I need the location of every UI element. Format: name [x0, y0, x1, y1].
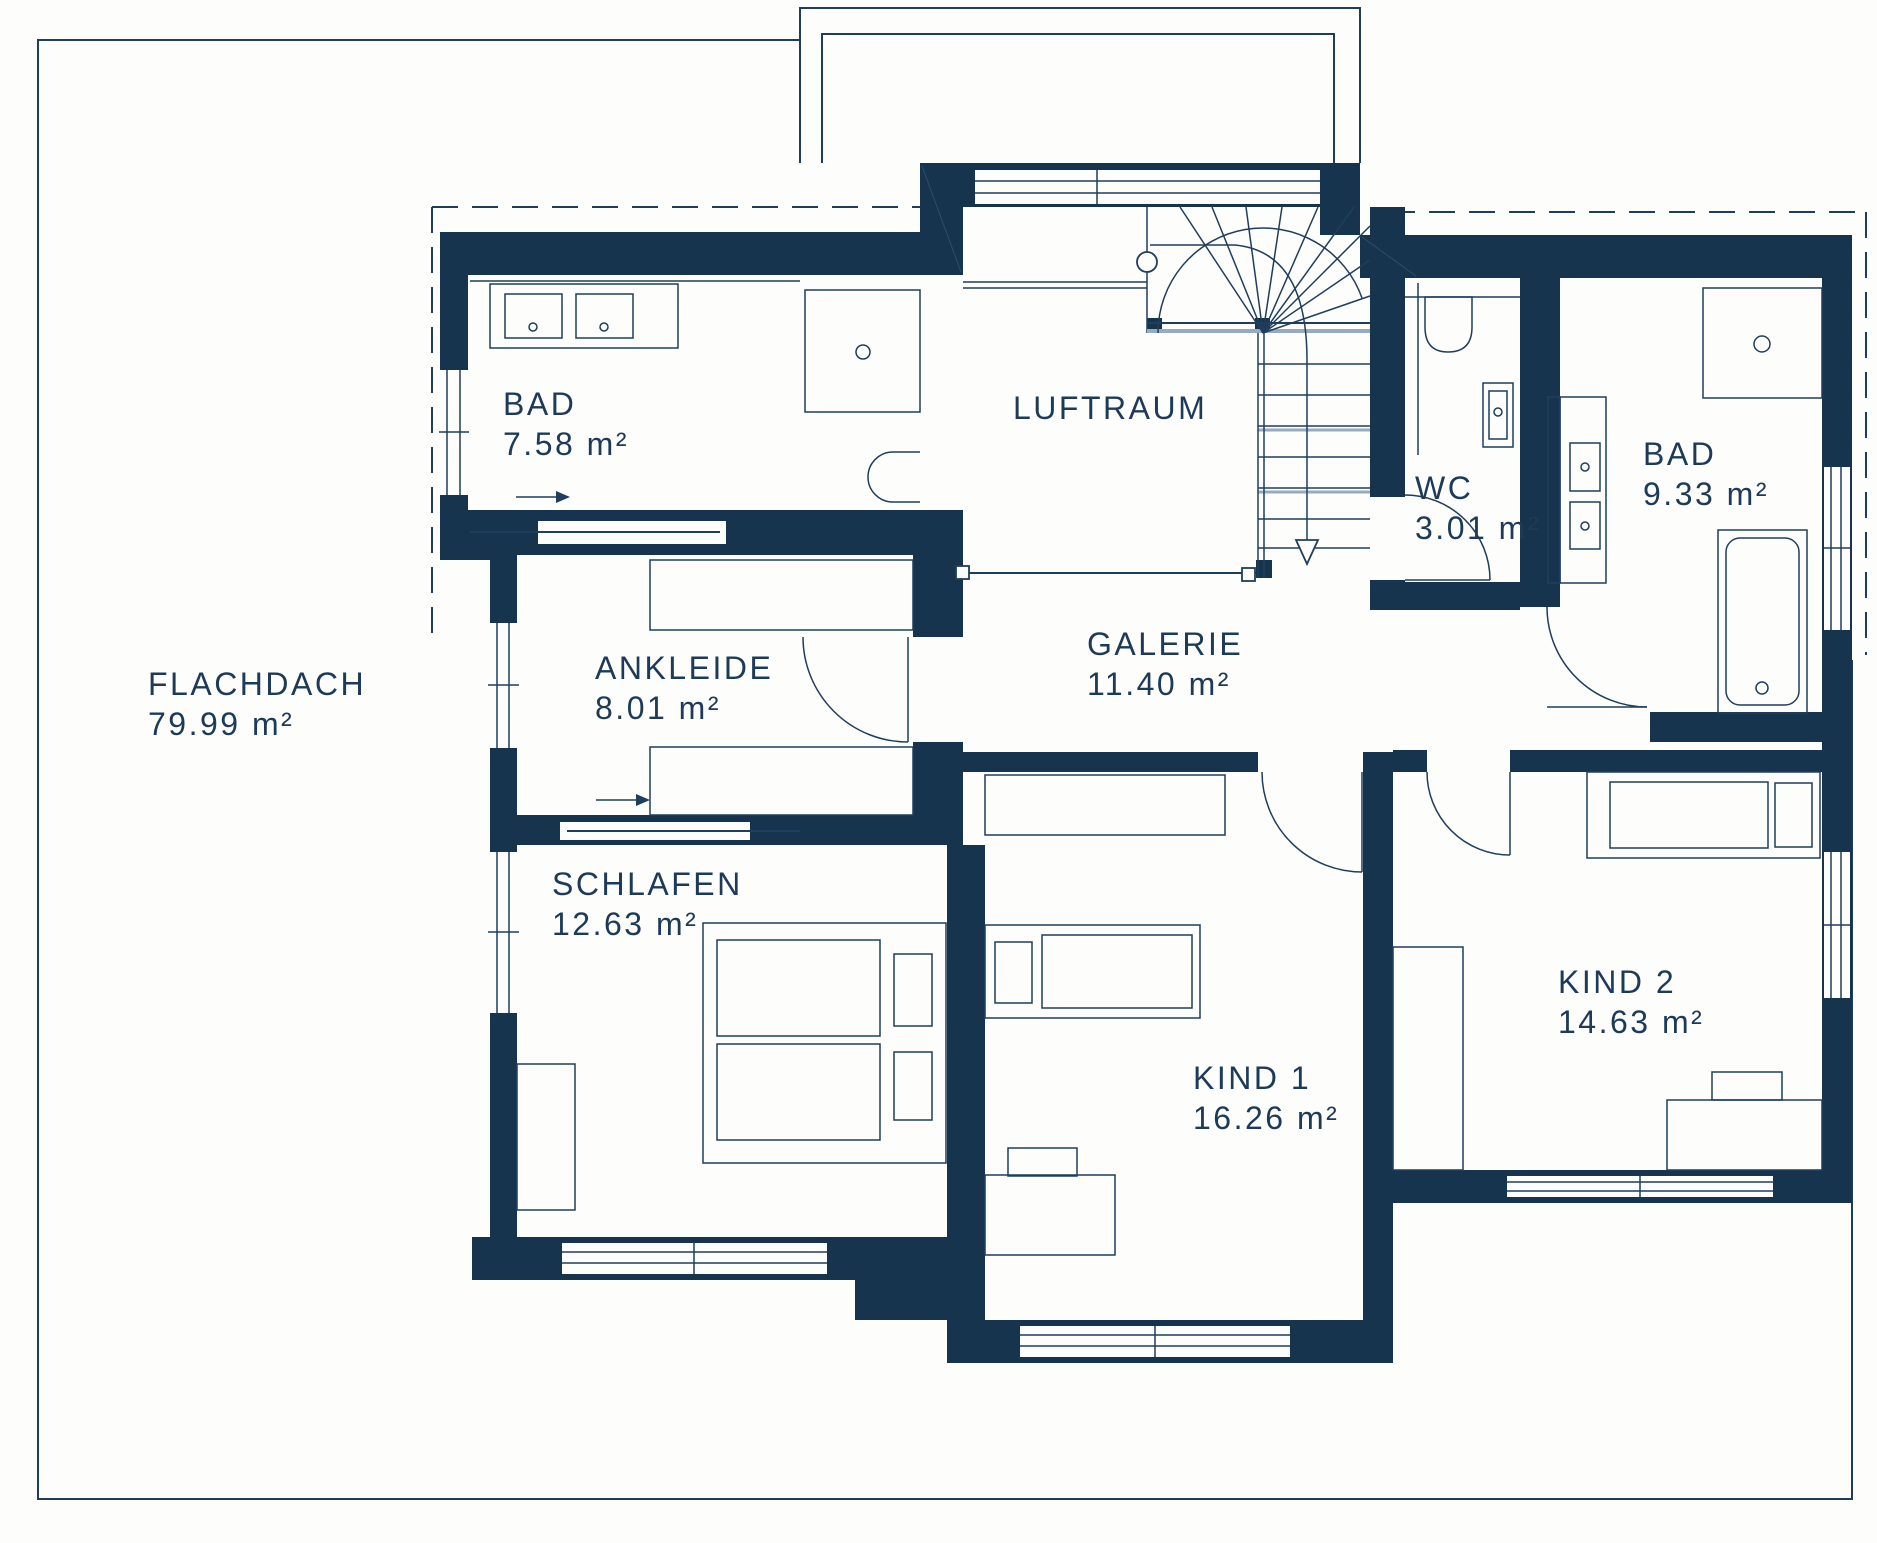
- room-area: 7.58 m²: [503, 424, 629, 464]
- desk-and-chair: [1667, 1072, 1822, 1170]
- furniture-schlafen: [517, 923, 946, 1210]
- room-name: BAD: [503, 386, 576, 422]
- nightstand: [894, 954, 932, 1026]
- door-ankleide: [803, 637, 908, 742]
- nightstand: [894, 1052, 932, 1120]
- room-area: 11.40 m²: [1087, 664, 1243, 704]
- single-bed: [985, 925, 1200, 1018]
- room-label-kind2: KIND 2 14.63 m²: [1558, 962, 1704, 1042]
- desk-and-chair: [985, 1148, 1115, 1255]
- room-name: SCHLAFEN: [552, 866, 743, 902]
- closet-top: [650, 560, 913, 630]
- floorplan: FLACHDACH 79.99 m² BAD 7.58 m² LUFTRAUM …: [0, 0, 1877, 1543]
- railing: [956, 282, 1256, 581]
- wardrobe: [985, 775, 1225, 835]
- toilet: [1425, 297, 1472, 352]
- closet-bottom: [650, 747, 913, 815]
- toilet: [868, 452, 920, 502]
- room-name: KIND 1: [1193, 1060, 1311, 1096]
- room-area: 16.26 m²: [1193, 1098, 1339, 1138]
- floorplan-svg: [0, 0, 1877, 1543]
- room-label-bad-left: BAD 7.58 m²: [503, 384, 629, 464]
- room-label-luftraum: LUFTRAUM: [1013, 388, 1207, 428]
- room-name: WC: [1415, 470, 1473, 506]
- furniture-wc: [1405, 283, 1520, 455]
- room-name: LUFTRAUM: [1013, 390, 1207, 426]
- room-name: FLACHDACH: [148, 666, 366, 702]
- double-bed: [703, 923, 946, 1163]
- room-label-ankleide: ANKLEIDE 8.01 m²: [595, 648, 773, 728]
- shower: [1703, 288, 1822, 398]
- stair-treads: [1180, 207, 1370, 548]
- hand-basin: [1483, 383, 1513, 447]
- door-bad-right: [1547, 607, 1647, 707]
- wardrobe: [517, 1064, 575, 1210]
- bathtub: [1718, 530, 1807, 713]
- single-bed: [1587, 772, 1820, 858]
- shower: [805, 290, 920, 412]
- room-label-schlafen: SCHLAFEN 12.63 m²: [552, 864, 743, 944]
- room-area: 12.63 m²: [552, 904, 743, 944]
- room-label-bad-right: BAD 9.33 m²: [1643, 434, 1769, 514]
- room-label-wc: WC 3.01 m²: [1415, 468, 1541, 548]
- door-openings: [911, 497, 1407, 742]
- wardrobe: [1393, 947, 1463, 1170]
- room-name: BAD: [1643, 436, 1716, 472]
- door-kind1: [1262, 772, 1362, 872]
- furniture-kind1: [985, 775, 1225, 1255]
- room-name: ANKLEIDE: [595, 650, 773, 686]
- room-area: 8.01 m²: [595, 688, 773, 728]
- room-label-galerie: GALERIE 11.40 m²: [1087, 624, 1243, 704]
- door-kind2: [1427, 772, 1510, 855]
- room-label-flachdach: FLACHDACH 79.99 m²: [148, 664, 366, 744]
- room-name: GALERIE: [1087, 626, 1243, 662]
- stair-down-arrow: [1296, 540, 1318, 564]
- vanity-double-sink: [490, 284, 678, 348]
- room-area: 3.01 m²: [1415, 508, 1541, 548]
- room-area: 14.63 m²: [1558, 1002, 1704, 1042]
- room-label-kind1: KIND 1 16.26 m²: [1193, 1058, 1339, 1138]
- room-area: 79.99 m²: [148, 704, 366, 744]
- room-name: KIND 2: [1558, 964, 1676, 1000]
- room-area: 9.33 m²: [1643, 474, 1769, 514]
